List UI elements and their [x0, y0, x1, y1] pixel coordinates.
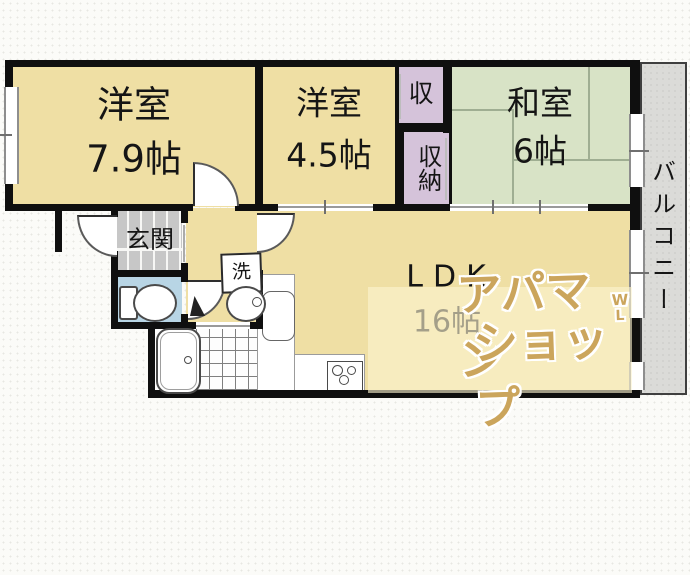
window-tick [0, 134, 12, 136]
wall [181, 211, 188, 223]
bathtub [156, 328, 201, 394]
kitchen-sink [262, 291, 295, 341]
wall [630, 187, 640, 230]
bathroom-tile-floor [196, 324, 261, 390]
kitchen-counter-joint [259, 356, 293, 390]
door-arc-entrance [77, 215, 117, 257]
sliding-door-washitsu-ldk [450, 204, 588, 211]
watermark-line2: ショップ [472, 303, 620, 438]
tatami-line [451, 109, 512, 111]
wall [181, 277, 188, 282]
label-west-room-1-size: 7.9帖 [86, 141, 182, 180]
tatami-line [588, 66, 590, 161]
wall [255, 60, 263, 211]
window-tick [629, 150, 649, 152]
washing-machine-label: 洗 [232, 263, 252, 284]
closet-door-line [399, 74, 401, 119]
label-west-room-2-size: 4.5帖 [286, 139, 371, 174]
window-tick [629, 272, 649, 274]
wall [373, 204, 450, 211]
wall [5, 204, 193, 211]
closet-door-line [445, 138, 447, 200]
label-west-room-2-name: 洋室 [296, 87, 362, 122]
washbasin-tap [252, 297, 262, 307]
sliding-door-tick [539, 200, 541, 214]
label-closet-upper: 収 [408, 81, 433, 107]
sliding-door-bathroom [196, 322, 250, 329]
label-japanese-room-size: 6帖 [513, 135, 567, 170]
label-japanese-room-name: 和室 [507, 87, 573, 122]
floor-plan: バルコニー [0, 0, 690, 575]
wall [630, 60, 640, 116]
entrance-step-line [183, 225, 185, 262]
sliding-door-tick [324, 200, 326, 214]
wall [148, 322, 155, 398]
watermark-mark-bottom: L [615, 308, 624, 324]
wall [5, 60, 640, 67]
stove [327, 361, 363, 391]
watermark-mark-top: W [611, 291, 628, 310]
sliding-door-tick [492, 200, 494, 214]
wall-porch [55, 204, 62, 252]
label-west-room-1-name: 洋室 [97, 87, 171, 126]
label-closet-lower: 収納 [414, 144, 439, 192]
bathtub-drain [184, 356, 192, 364]
toilet-bowl [133, 284, 177, 322]
wall [111, 270, 188, 277]
balcony-label: バルコニー [648, 159, 673, 319]
wall [395, 123, 404, 211]
wall [449, 131, 452, 207]
wall [111, 251, 118, 328]
label-entrance: 玄関 [126, 227, 174, 252]
